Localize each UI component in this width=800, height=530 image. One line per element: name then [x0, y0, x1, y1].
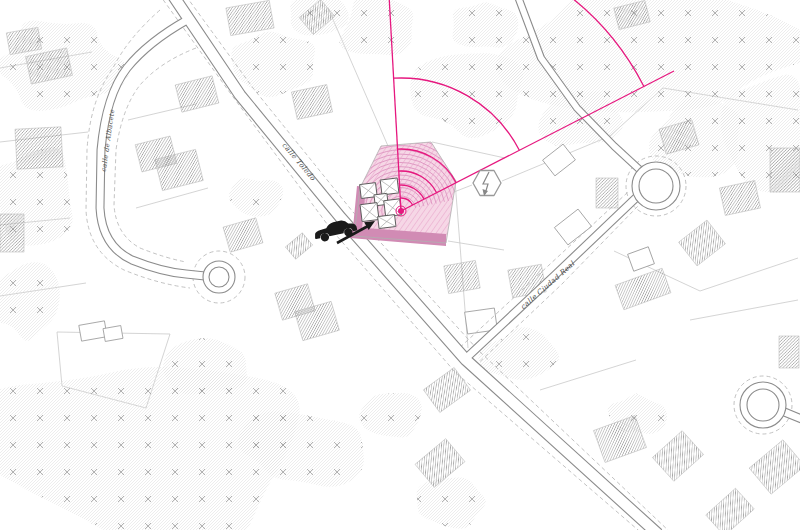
- plot-building-outline: [103, 326, 123, 342]
- building-footprint-rect: [444, 260, 480, 293]
- building-footprint: [652, 431, 703, 482]
- parcel-line: [432, 142, 505, 158]
- building-footprint: [615, 268, 671, 310]
- plot-building-outline: [79, 321, 107, 341]
- building-footprint-rect: [175, 76, 219, 112]
- building-footprint: [706, 488, 754, 530]
- building-footprint-rect: [285, 233, 312, 259]
- building-footprint-rect: [706, 488, 754, 530]
- building-footprint-rect: [679, 220, 726, 266]
- plot-building-outline-rect: [79, 321, 107, 341]
- plot-building-outline-rect: [543, 144, 576, 176]
- building-footprint: [15, 127, 63, 169]
- building-footprint-rect: [615, 268, 671, 310]
- parcel-line: [57, 332, 62, 386]
- building-footprint-rect: [749, 440, 800, 494]
- vegetation-tree-marks: [0, 262, 60, 341]
- building-footprint: [719, 181, 760, 216]
- building-footprint-rect: [291, 85, 332, 120]
- building-footprint: [679, 220, 726, 266]
- parcel-line: [136, 188, 208, 208]
- building-footprint-rect: [652, 431, 703, 482]
- site-plan-map: calle de Albacetecalle Toledocalle Ciuda…: [0, 0, 800, 530]
- parcel-line: [700, 258, 798, 291]
- building-footprint: [749, 440, 800, 494]
- vegetation-tree-marks: [452, 2, 518, 48]
- building-footprint-rect: [15, 127, 63, 169]
- street-label-toledo: calle Toledo: [280, 141, 317, 183]
- roundabout-island: [747, 389, 779, 421]
- building-footprint-rect: [226, 0, 274, 35]
- vegetation-tree-marks: [229, 178, 283, 216]
- building-footprint: [423, 368, 470, 413]
- building-footprint: [291, 85, 332, 120]
- vegetation-tree-marks: [359, 393, 422, 438]
- building-footprint-rect: [0, 214, 24, 252]
- parcel-line: [690, 300, 798, 320]
- building-footprint: [770, 148, 800, 192]
- building-footprint-rect: [779, 336, 799, 368]
- building-footprint: [444, 260, 480, 293]
- roundabout-island: [639, 169, 673, 203]
- site-plan-canvas: calle de Albacetecalle Toledocalle Ciuda…: [0, 0, 800, 530]
- building-footprint: [779, 336, 799, 368]
- vegetation-tree-marks: [231, 31, 315, 97]
- building-footprint: [175, 76, 219, 112]
- building-footprint-rect: [719, 181, 760, 216]
- vegetation-tree-marks: [163, 338, 247, 394]
- vegetation-tree-marks: [340, 0, 414, 55]
- building-footprint: [226, 0, 274, 35]
- parcel-line: [448, 241, 504, 250]
- roundabout-island: [209, 267, 229, 287]
- building-footprint-rect: [770, 148, 800, 192]
- site-marker-dot: [398, 208, 404, 214]
- building-footprint: [0, 214, 24, 252]
- building-footprint-rect: [423, 368, 470, 413]
- building-footprint-rect: [596, 178, 618, 208]
- building-footprint: [223, 218, 263, 252]
- building-footprint: [285, 233, 312, 259]
- vegetation-tree-marks: [417, 477, 486, 528]
- building-footprint-rect: [223, 218, 263, 252]
- plot-building-outline-rect: [103, 326, 123, 342]
- building-footprint: [596, 178, 618, 208]
- plot-building-outline: [543, 144, 576, 176]
